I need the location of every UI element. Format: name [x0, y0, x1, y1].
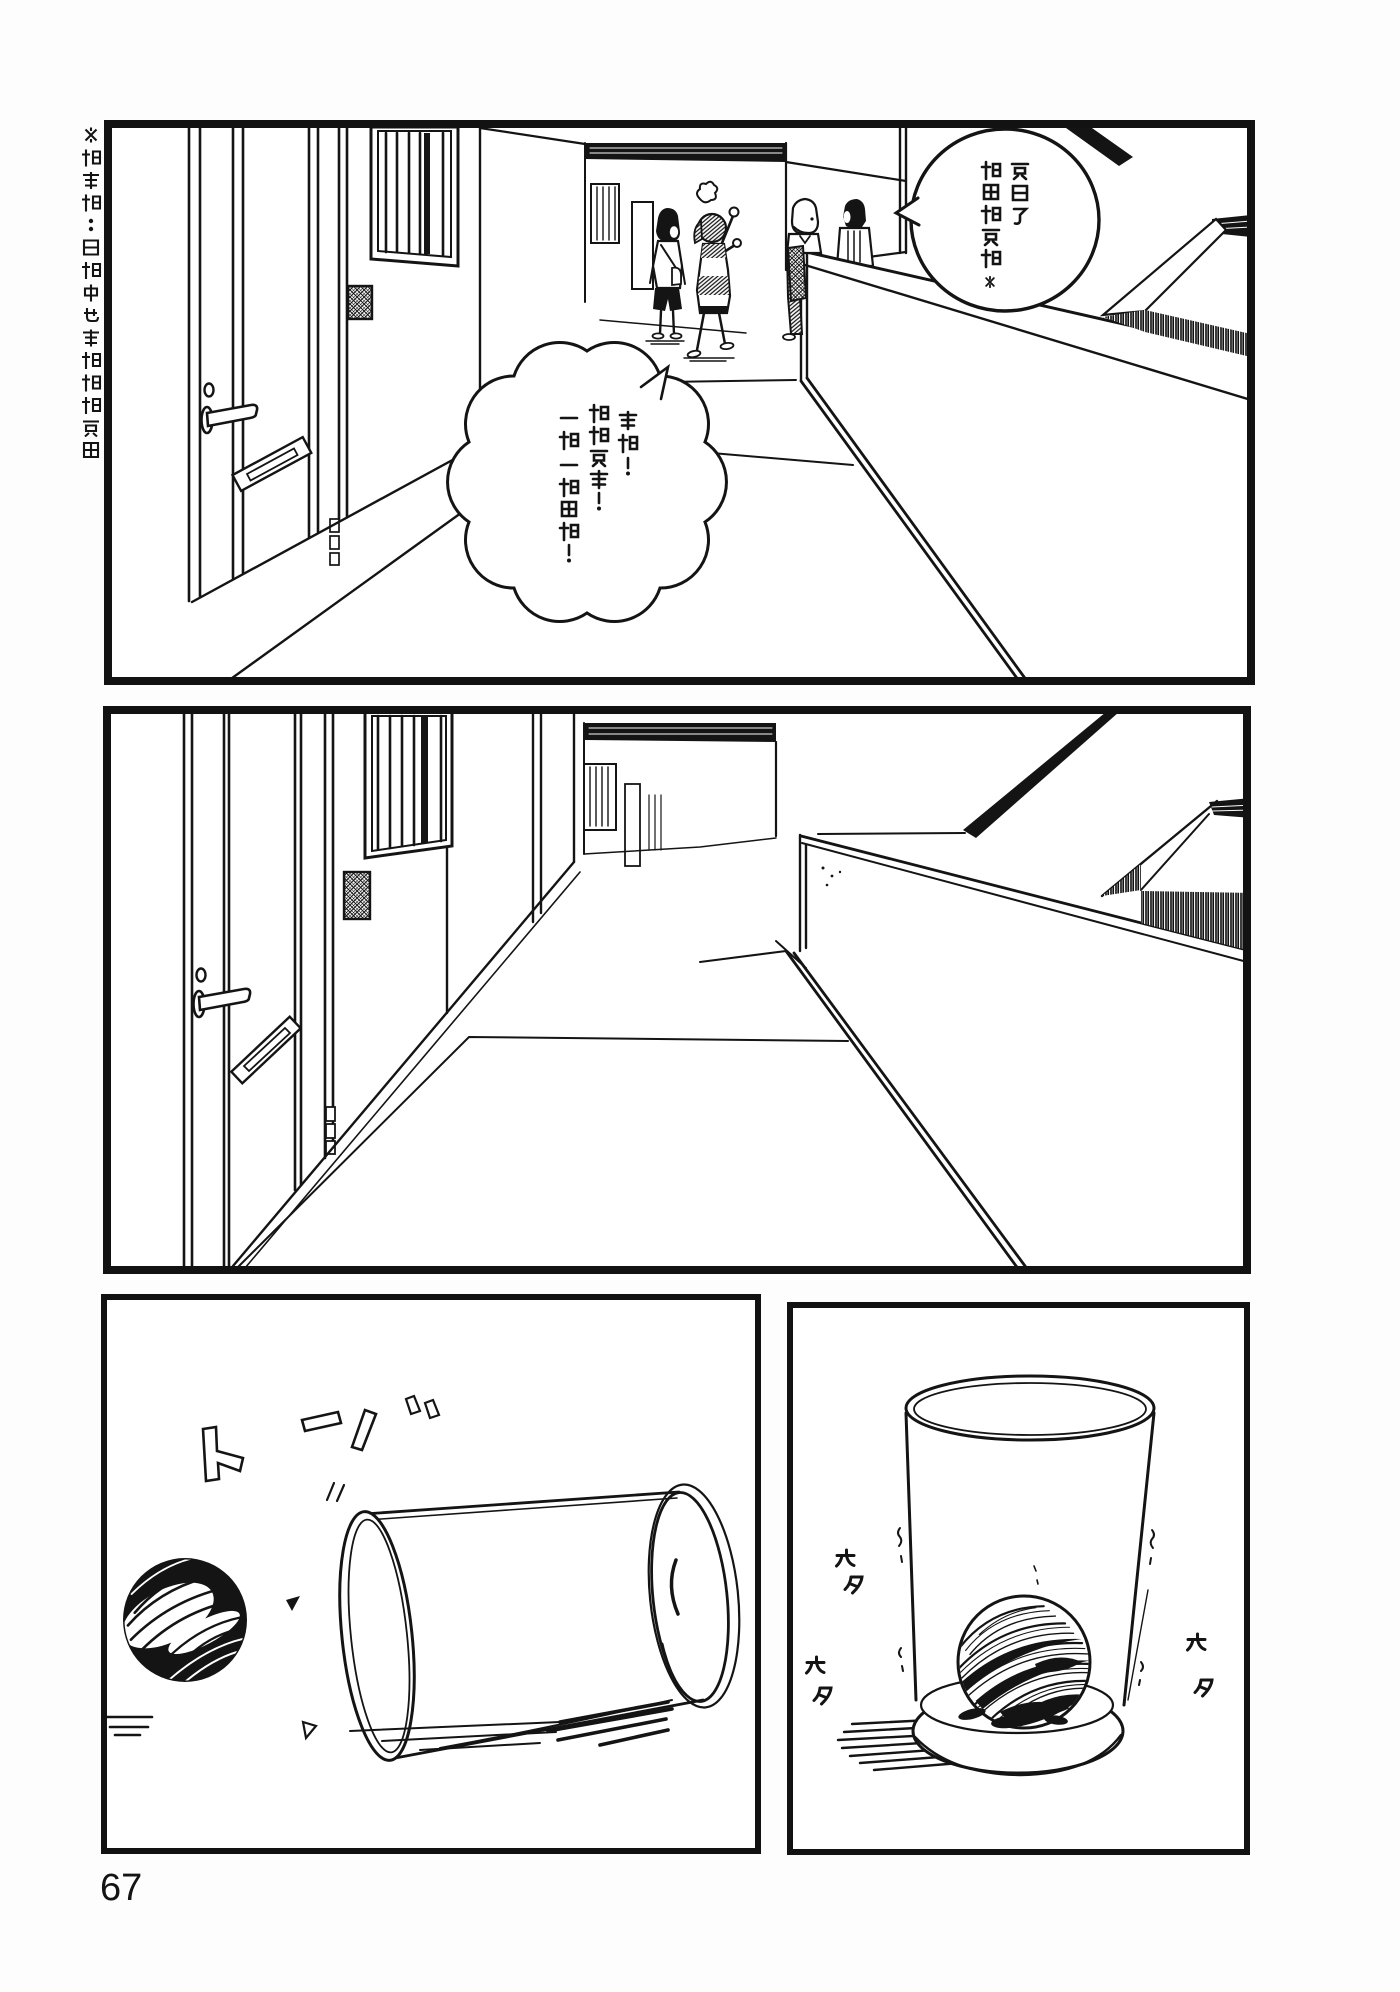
svg-text:67: 67: [100, 1867, 142, 1909]
